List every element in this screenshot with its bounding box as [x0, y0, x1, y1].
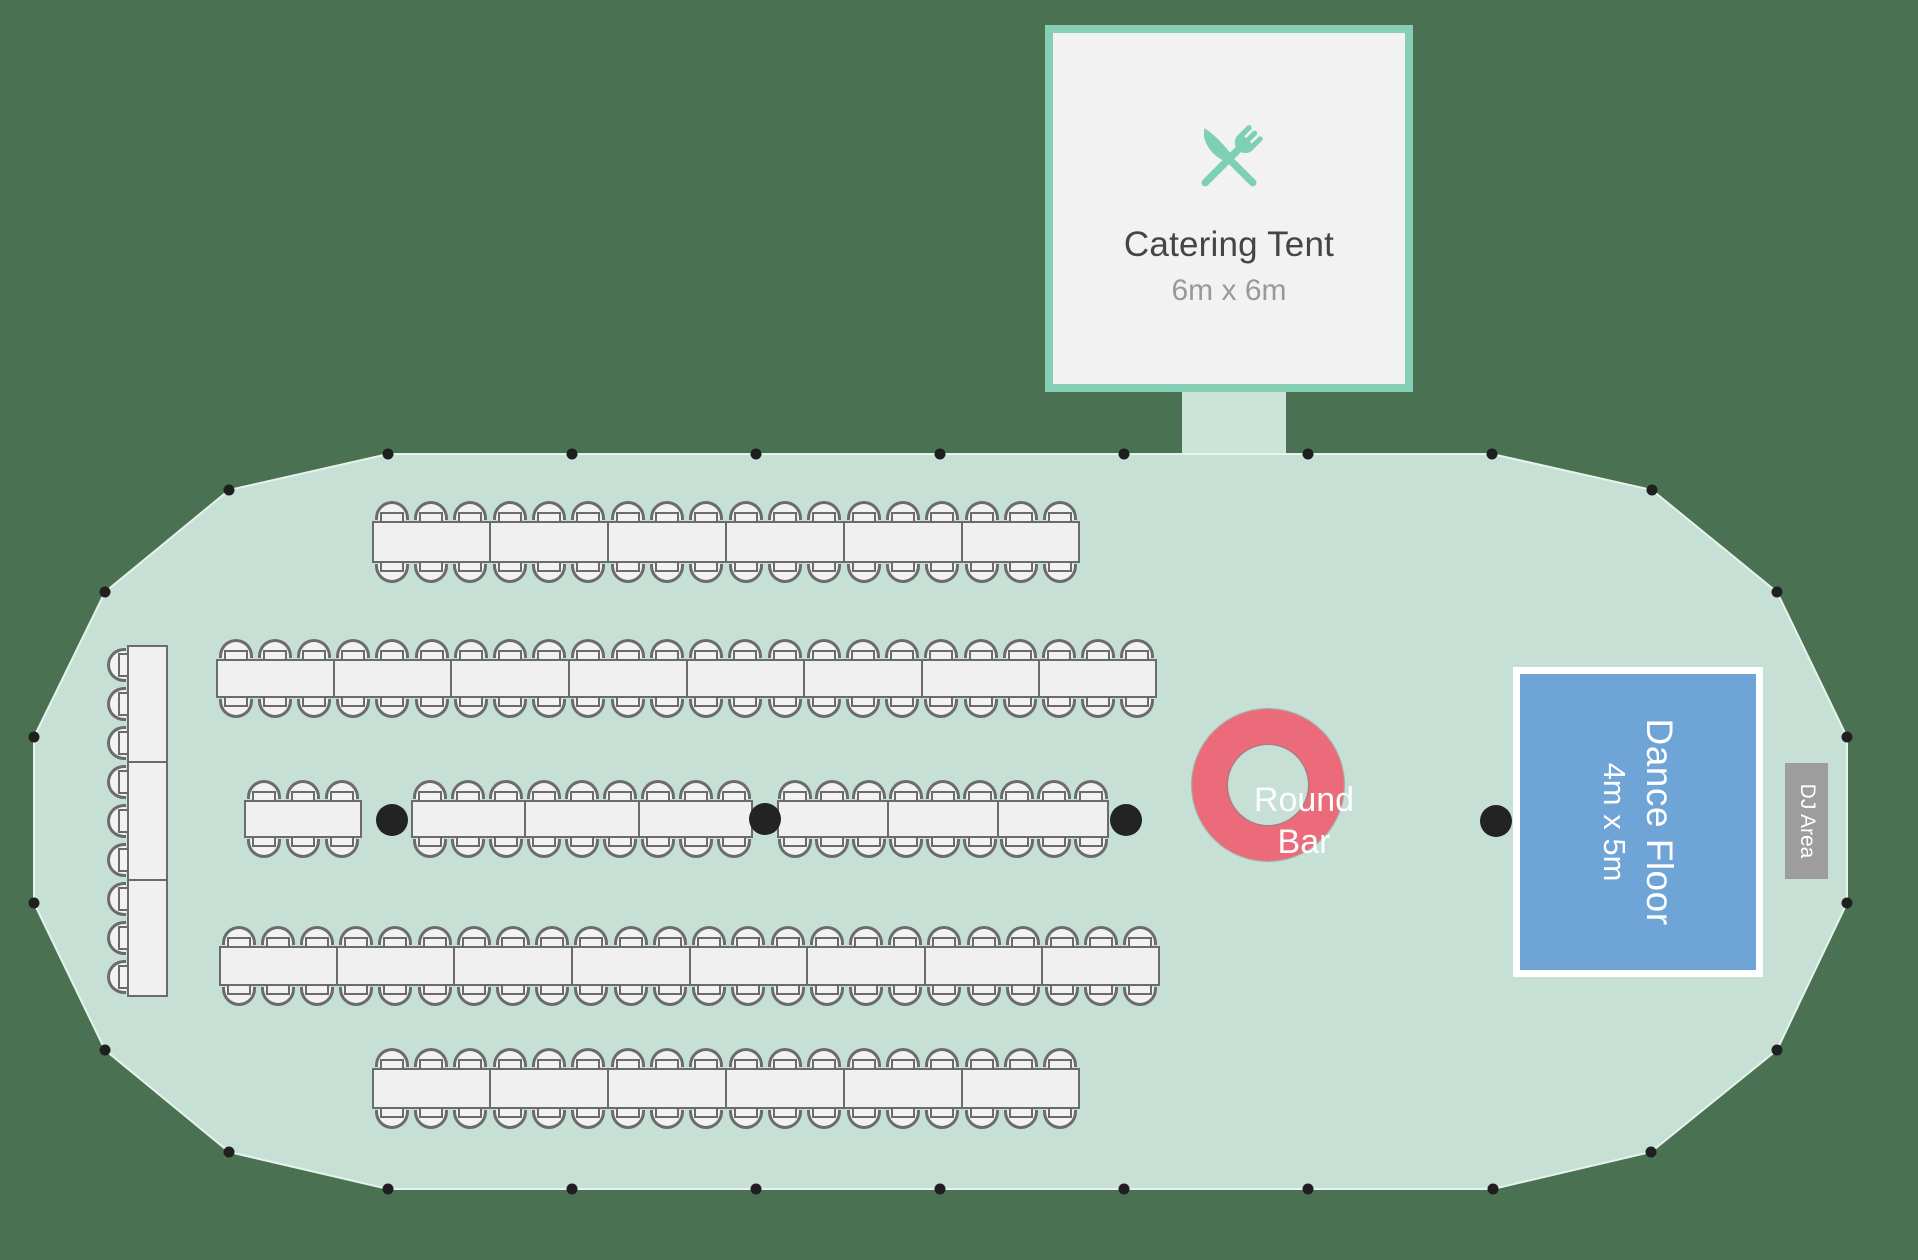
tent-stake-dot — [751, 1184, 762, 1195]
table-segment-divider — [524, 802, 526, 836]
tent-stake-dot — [1772, 1045, 1783, 1056]
table-segment-divider — [489, 523, 491, 561]
table-segment-divider — [803, 661, 805, 696]
dance-floor[interactable]: Dance Floor 4m x 5m — [1513, 667, 1763, 977]
tent-stake-dot — [1303, 449, 1314, 460]
table-segment-divider — [806, 948, 808, 984]
table-segment-divider — [961, 523, 963, 561]
tent-stake-dot — [1303, 1184, 1314, 1195]
fork-knife-icon — [1173, 101, 1285, 213]
support-pole — [1480, 805, 1512, 837]
vertical-side-table[interactable] — [127, 645, 168, 997]
tent-stake-dot — [1487, 449, 1498, 460]
table-segment-divider — [1038, 661, 1040, 696]
table-segment-divider — [887, 802, 889, 836]
table-row-3-right[interactable] — [777, 800, 1109, 838]
table-segment-divider — [725, 523, 727, 561]
table-segment-divider — [336, 948, 338, 984]
dance-floor-label: Dance Floor 4m x 5m — [1596, 718, 1680, 925]
tent-stake-dot — [567, 1184, 578, 1195]
catering-tent[interactable]: Catering Tent 6m x 6m — [1045, 25, 1413, 392]
tent-stake-dot — [1772, 587, 1783, 598]
tent-stake-dot — [1488, 1184, 1499, 1195]
table-segment-divider — [568, 661, 570, 696]
table-segment-divider — [450, 661, 452, 696]
support-pole — [749, 803, 781, 835]
table-segment-divider — [129, 761, 166, 763]
table-segment-divider — [129, 879, 166, 881]
table-segment-divider — [333, 661, 335, 696]
tent-stake-dot — [224, 485, 235, 496]
table-segment-divider — [607, 1070, 609, 1107]
round-bar-label: Round Bar — [1192, 779, 1416, 863]
tent-stake-dot — [567, 449, 578, 460]
table-segment-divider — [843, 523, 845, 561]
tent-stake-dot — [29, 898, 40, 909]
table-segment-divider — [453, 948, 455, 984]
tent-stake-dot — [100, 587, 111, 598]
tent-stake-dot — [1842, 732, 1853, 743]
table-segment-divider — [921, 661, 923, 696]
table-row-3-mid[interactable] — [411, 800, 753, 838]
table-segment-divider — [689, 948, 691, 984]
event-floor-plan-canvas: Catering Tent 6m x 6m Round Bar Dance Fl… — [0, 0, 1918, 1260]
table-segment-divider — [924, 948, 926, 984]
tent-stake-dot — [383, 449, 394, 460]
table-segment-divider — [571, 948, 573, 984]
tent-stake-dot — [935, 1184, 946, 1195]
table-segment-divider — [997, 802, 999, 836]
table-segment-divider — [843, 1070, 845, 1107]
dj-area[interactable]: DJ Area — [1785, 763, 1828, 879]
tent-stake-dot — [383, 1184, 394, 1195]
table-segment-divider — [607, 523, 609, 561]
table-segment-divider — [686, 661, 688, 696]
tent-stake-dot — [224, 1147, 235, 1158]
table-segment-divider — [961, 1070, 963, 1107]
dance-floor-size-label: 4m x 5m — [1596, 718, 1632, 925]
table-segment-divider — [1041, 948, 1043, 984]
tent-stake-dot — [935, 449, 946, 460]
tent-stake-dot — [100, 1045, 111, 1056]
table-segment-divider — [489, 1070, 491, 1107]
table-segment-divider — [725, 1070, 727, 1107]
tent-stake-dot — [1119, 449, 1130, 460]
round-bar-label-line1: Round — [1192, 779, 1416, 821]
tent-stake-dot — [751, 449, 762, 460]
catering-tent-size-label: 6m x 6m — [1171, 274, 1286, 308]
tent-stake-dot — [1842, 898, 1853, 909]
tent-stake-dot — [1119, 1184, 1130, 1195]
round-bar-label-line2: Bar — [1192, 821, 1416, 863]
dance-floor-surface: Dance Floor 4m x 5m — [1520, 674, 1756, 970]
table-row-3-small[interactable] — [244, 800, 362, 838]
tent-stake-dot — [1646, 1147, 1657, 1158]
dj-area-label: DJ Area — [1795, 784, 1819, 859]
support-pole — [376, 804, 408, 836]
support-pole — [1110, 804, 1142, 836]
tent-stake-dot — [1647, 485, 1658, 496]
catering-tent-label: Catering Tent — [1124, 225, 1334, 265]
tent-stake-dot — [29, 732, 40, 743]
table-segment-divider — [638, 802, 640, 836]
